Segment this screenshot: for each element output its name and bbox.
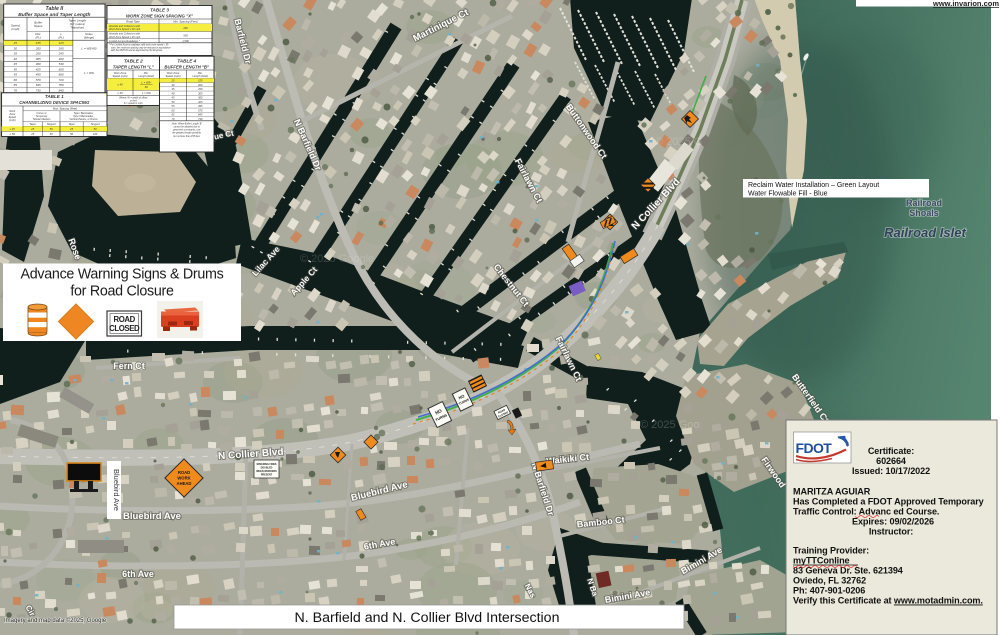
svg-text:L = WS: L = WS (84, 71, 94, 75)
svg-text:Limited Access Roadways *: Limited Access Roadways * (109, 40, 141, 43)
svg-text:TABLE 4: TABLE 4 (177, 59, 196, 64)
svg-text:Road Type: Road Type (126, 20, 140, 24)
svg-text:myTTConline: myTTConline (793, 556, 850, 566)
svg-text:with the MUTCD and as approved: with the MUTCD and as approved by the En… (111, 49, 163, 52)
svg-text:60: 60 (145, 85, 148, 89)
svg-text:200: 200 (35, 46, 41, 50)
svg-text:570: 570 (198, 108, 203, 112)
svg-text:70: 70 (14, 88, 18, 92)
svg-text:≤ 40: ≤ 40 (117, 83, 123, 87)
svg-text:TABLE 3: TABLE 3 (150, 8, 169, 13)
svg-text:200: 200 (182, 26, 188, 30)
svg-text:www.invarion.com: www.invarion.com (932, 0, 999, 8)
svg-text:Work Zone Speed ≥ 45 mph: Work Zone Speed ≥ 45 mph (109, 36, 141, 39)
svg-text:(mph): (mph) (9, 119, 16, 122)
svg-text:ROAD: ROAD (178, 470, 190, 475)
svg-text:660: 660 (59, 73, 64, 77)
svg-text:PRESENT: PRESENT (261, 474, 273, 477)
svg-text:Has Completed a FDOT Approved: Has Completed a FDOT Approved Temporary (793, 497, 985, 507)
svg-text:360: 360 (198, 96, 203, 100)
svg-text:Oviedo, FL 32762: Oviedo, FL 32762 (793, 576, 866, 586)
svg-text:Tangent: Tangent (47, 123, 56, 126)
svg-text:495: 495 (36, 73, 41, 77)
svg-text:Taper: Taper (30, 123, 36, 126)
svg-text:55: 55 (14, 73, 18, 77)
svg-text:730: 730 (36, 88, 41, 92)
svg-text:730: 730 (198, 117, 203, 121)
svg-text:360: 360 (36, 62, 41, 66)
svg-text:L = WS: L = WS (142, 91, 151, 95)
svg-text:125: 125 (59, 41, 64, 45)
svg-text:ROAD: ROAD (114, 315, 136, 324)
svg-text:Fern Ct: Fern Ct (113, 361, 145, 371)
svg-text:the greatest length possible,: the greatest length possible, (172, 132, 201, 135)
svg-text:495: 495 (198, 104, 203, 108)
svg-text:500: 500 (183, 34, 188, 38)
svg-text:Ph: 407-901-0206: Ph: 407-901-0206 (793, 586, 865, 596)
svg-text:25: 25 (171, 79, 175, 83)
svg-text:40: 40 (14, 57, 18, 61)
svg-text:© 2025 Goo: © 2025 Goo (640, 419, 699, 431)
svg-text:Expires: 09/02/2026: Expires: 09/02/2026 (852, 517, 934, 527)
svg-text:(Ft.): (Ft.) (58, 35, 63, 39)
svg-text:25: 25 (69, 127, 73, 131)
svg-text:L = WS²: L = WS² (141, 81, 151, 85)
svg-text:645: 645 (198, 113, 203, 117)
svg-text:65: 65 (14, 83, 18, 87)
svg-text:50: 50 (14, 67, 18, 71)
svg-text:645: 645 (36, 83, 41, 87)
svg-text:320: 320 (59, 57, 64, 61)
svg-text:250: 250 (197, 87, 203, 91)
svg-text:600: 600 (59, 67, 64, 71)
svg-text:Reclaim Water Installation – G: Reclaim Water Installation – Green Layou… (748, 182, 879, 189)
svg-text:720: 720 (59, 78, 64, 82)
svg-text:Railroad: Railroad (906, 198, 942, 208)
svg-text:780: 780 (59, 83, 64, 87)
svg-text:Tangent: Tangent (91, 123, 100, 126)
svg-text:180: 180 (59, 46, 64, 50)
svg-text:Railroad Islet: Railroad Islet (884, 225, 966, 240)
svg-text:245: 245 (58, 52, 64, 56)
svg-text:for Road Closure: for Road Closure (70, 284, 174, 300)
svg-text:Transition): Transition) (70, 26, 84, 30)
svg-text:25: 25 (30, 132, 34, 136)
svg-text:© 2025 Google: © 2025 Google (300, 253, 374, 265)
svg-text:© 2025 G: © 2025 G (655, 136, 702, 148)
svg-text:Length (Feet): Length (Feet) (192, 74, 208, 78)
svg-text:(mph): (mph) (11, 27, 19, 31)
svg-text:MARITZA AGUIAR: MARITZA AGUIAR (793, 487, 871, 497)
svg-text:305: 305 (198, 91, 203, 95)
svg-text:* For Limited Access roadways: * For Limited Access roadways with work … (109, 44, 169, 47)
svg-text:(Merge): (Merge) (84, 35, 94, 39)
svg-text:25: 25 (13, 41, 18, 45)
svg-text:Length (Feet): Length (Feet) (138, 74, 154, 78)
svg-text:540: 540 (59, 62, 64, 66)
svg-text:Issued: 10/17/2022: Issued: 10/17/2022 (852, 466, 930, 476)
svg-text:Training Provider:: Training Provider: (793, 546, 869, 556)
svg-text:CLOSED: CLOSED (109, 324, 140, 333)
svg-text:geometric constraints, use: geometric constraints, use (173, 129, 201, 132)
svg-text:250: 250 (35, 52, 41, 56)
svg-text:25: 25 (30, 127, 34, 131)
svg-text:Buffer Space and Taper Length: Buffer Space and Taper Length (18, 12, 90, 18)
svg-text:30: 30 (14, 46, 18, 50)
svg-text:Traffic Control: Advanc ed Cou: Traffic Control: Advanc ed Course. (793, 507, 939, 517)
svg-text:Shoals: Shoals (909, 208, 939, 218)
svg-text:TAPER LENGTH "L": TAPER LENGTH "L" (113, 65, 155, 70)
svg-text:CHANNELIZING DEVICE SPACING: CHANNELIZING DEVICE SPACING (19, 100, 90, 105)
svg-text:Speed (mph): Speed (mph) (166, 74, 181, 78)
svg-text:Speed (mph): Speed (mph) (113, 74, 128, 78)
svg-text:Max. Spacing (Feet): Max. Spacing (Feet) (53, 107, 77, 111)
svg-text:155: 155 (36, 41, 41, 45)
svg-text:Advance Warning Signs & Drums: Advance Warning Signs & Drums (21, 267, 224, 283)
svg-text:Tubular Markers: Tubular Markers (32, 118, 51, 121)
svg-text:Bluebird Ave: Bluebird Ave (112, 469, 121, 511)
svg-text:BUFFER LENGTH "B": BUFFER LENGTH "B" (164, 65, 210, 70)
svg-text:but not less than 155 feet.: but not less than 155 feet. (173, 135, 200, 138)
svg-text:Space: Space (34, 24, 43, 28)
svg-text:Taper: Taper (68, 123, 74, 126)
svg-text:Imagery and map data ©2025, Go: Imagery and map data ©2025, Google (4, 617, 107, 624)
svg-text:840: 840 (59, 88, 64, 92)
svg-text:(Ft.): (Ft.) (36, 35, 41, 39)
svg-text:Work Zone Speed ≤ 40 mph: Work Zone Speed ≤ 40 mph (109, 28, 141, 31)
svg-text:155: 155 (198, 79, 203, 83)
svg-text:200: 200 (197, 83, 203, 87)
svg-text:Note: When Buffer Length 'B': Note: When Buffer Length 'B' (172, 122, 203, 125)
svg-text:425: 425 (36, 67, 41, 71)
svg-text:L = WS²/60: L = WS²/60 (81, 47, 96, 51)
svg-text:570: 570 (36, 78, 41, 82)
svg-text:Vertical Panels, or Drums: Vertical Panels, or Drums (69, 118, 98, 121)
svg-text:Water Flowable Fill - Blue: Water Flowable Fill - Blue (748, 191, 828, 198)
svg-text:6th Ave: 6th Ave (122, 569, 154, 579)
svg-text:Instructor:: Instructor: (869, 527, 913, 537)
svg-text:Min. Spacing (Feet): Min. Spacing (Feet) (173, 20, 197, 24)
svg-text:TABLE 1: TABLE 1 (45, 94, 64, 99)
svg-text:100: 100 (93, 132, 98, 136)
svg-text:35: 35 (14, 52, 18, 56)
svg-text:Table II: Table II (46, 6, 64, 12)
svg-text:≤ 45: ≤ 45 (10, 127, 16, 131)
svg-text:1,500: 1,500 (182, 39, 189, 43)
svg-text:602664: 602664 (876, 456, 907, 466)
svg-text:cannot be attained due to: cannot be attained due to (174, 126, 201, 129)
svg-text:Bluebird Ave: Bluebird Ave (123, 511, 181, 522)
svg-text:N. Barfield and N. Collier Blv: N. Barfield and N. Collier Blvd Intersec… (295, 610, 560, 626)
svg-text:Certificate:: Certificate: (868, 446, 914, 456)
svg-text:mph, the minimum spacing may b: mph, the minimum spacing may be reduced … (111, 46, 171, 49)
svg-text:TABLE 2: TABLE 2 (124, 59, 143, 64)
svg-text:AHEAD: AHEAD (177, 481, 192, 486)
svg-text:≥ 50: ≥ 50 (10, 132, 16, 136)
svg-text:Verify this Certificate at www: Verify this Certificate at www.motadmin.… (793, 596, 983, 606)
svg-text:60: 60 (14, 78, 18, 82)
svg-text:425: 425 (198, 100, 203, 104)
svg-text:WORK ZONE SIGN SPACING "X": WORK ZONE SIGN SPACING "X" (126, 14, 194, 19)
svg-text:305: 305 (36, 57, 41, 61)
svg-text:WORK: WORK (177, 476, 190, 481)
svg-text:45: 45 (14, 62, 18, 66)
svg-text:S = speed in mph: S = speed in mph (124, 102, 143, 105)
svg-text:FDOT: FDOT (796, 440, 833, 456)
svg-text:≥ 45: ≥ 45 (117, 91, 123, 95)
